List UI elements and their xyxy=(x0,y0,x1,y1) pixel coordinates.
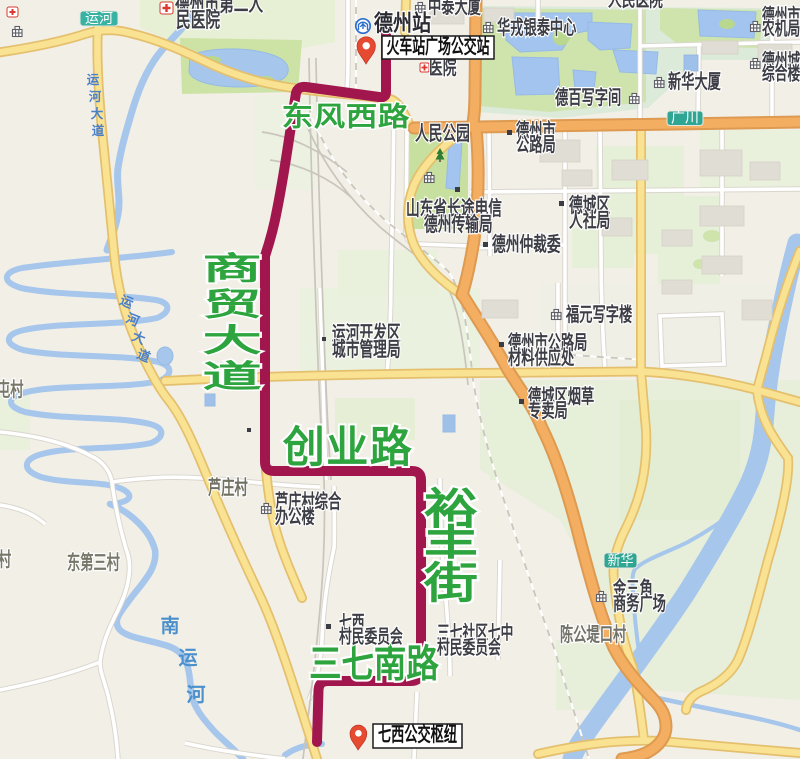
svg-text:街: 街 xyxy=(423,560,478,608)
svg-text:运河: 运河 xyxy=(85,10,113,26)
svg-text:创业路: 创业路 xyxy=(282,423,413,472)
svg-text:七西公交枢纽: 七西公交枢纽 xyxy=(378,722,457,746)
svg-text:运: 运 xyxy=(178,648,197,669)
svg-text:商: 商 xyxy=(202,251,261,286)
svg-text:商务广场: 商务广场 xyxy=(613,592,666,615)
svg-text:东第三村: 东第三村 xyxy=(67,551,120,574)
svg-text:材料供应处: 材料供应处 xyxy=(508,346,575,369)
svg-text:福元写字楼: 福元写字楼 xyxy=(565,303,632,326)
svg-text:新华: 新华 xyxy=(608,552,634,568)
svg-text:屯村: 屯村 xyxy=(0,378,24,401)
svg-text:南: 南 xyxy=(160,615,179,637)
svg-text:民医院: 民医院 xyxy=(176,7,220,32)
svg-text:人民医院: 人民医院 xyxy=(608,0,663,11)
svg-text:德州站: 德州站 xyxy=(374,10,431,36)
svg-text:陈公堤口村: 陈公堤口村 xyxy=(560,623,626,646)
svg-text:专卖局: 专卖局 xyxy=(528,399,568,422)
svg-text:新华大厦: 新华大厦 xyxy=(668,70,721,93)
svg-text:华戎银泰中心: 华戎银泰中心 xyxy=(497,16,576,39)
svg-text:芦庄村: 芦庄村 xyxy=(208,476,248,499)
svg-text:村民委员会: 村民委员会 xyxy=(437,637,501,658)
svg-text:运: 运 xyxy=(87,73,100,87)
svg-text:办公楼: 办公楼 xyxy=(275,505,315,528)
svg-text:大: 大 xyxy=(91,106,104,121)
svg-text:广川: 广川 xyxy=(671,110,699,126)
svg-text:德百写字间: 德百写字间 xyxy=(555,86,621,109)
svg-text:村民委员会: 村民委员会 xyxy=(339,626,403,647)
svg-text:贸: 贸 xyxy=(202,287,261,322)
svg-text:公路局: 公路局 xyxy=(516,133,556,156)
svg-text:城市管理局: 城市管理局 xyxy=(332,337,401,361)
svg-text:大: 大 xyxy=(202,323,261,358)
svg-text:村: 村 xyxy=(0,548,11,571)
svg-text:德州传输局: 德州传输局 xyxy=(424,212,493,236)
svg-text:人民公园: 人民公园 xyxy=(415,122,470,145)
svg-text:中泰大厦: 中泰大厦 xyxy=(428,0,481,18)
svg-text:道: 道 xyxy=(92,123,105,138)
svg-text:德州仲裁委: 德州仲裁委 xyxy=(492,232,561,256)
svg-text:三七南路: 三七南路 xyxy=(309,642,439,685)
svg-text:农机局: 农机局 xyxy=(761,18,800,39)
svg-text:综合楼: 综合楼 xyxy=(762,63,800,84)
svg-text:河: 河 xyxy=(89,89,102,104)
svg-text:道: 道 xyxy=(202,359,261,394)
svg-text:东风西路: 东风西路 xyxy=(282,101,410,132)
svg-text:人社局: 人社局 xyxy=(569,208,610,232)
svg-text:河: 河 xyxy=(186,684,205,706)
svg-text:火车站广场公交站: 火车站广场公交站 xyxy=(387,34,490,58)
